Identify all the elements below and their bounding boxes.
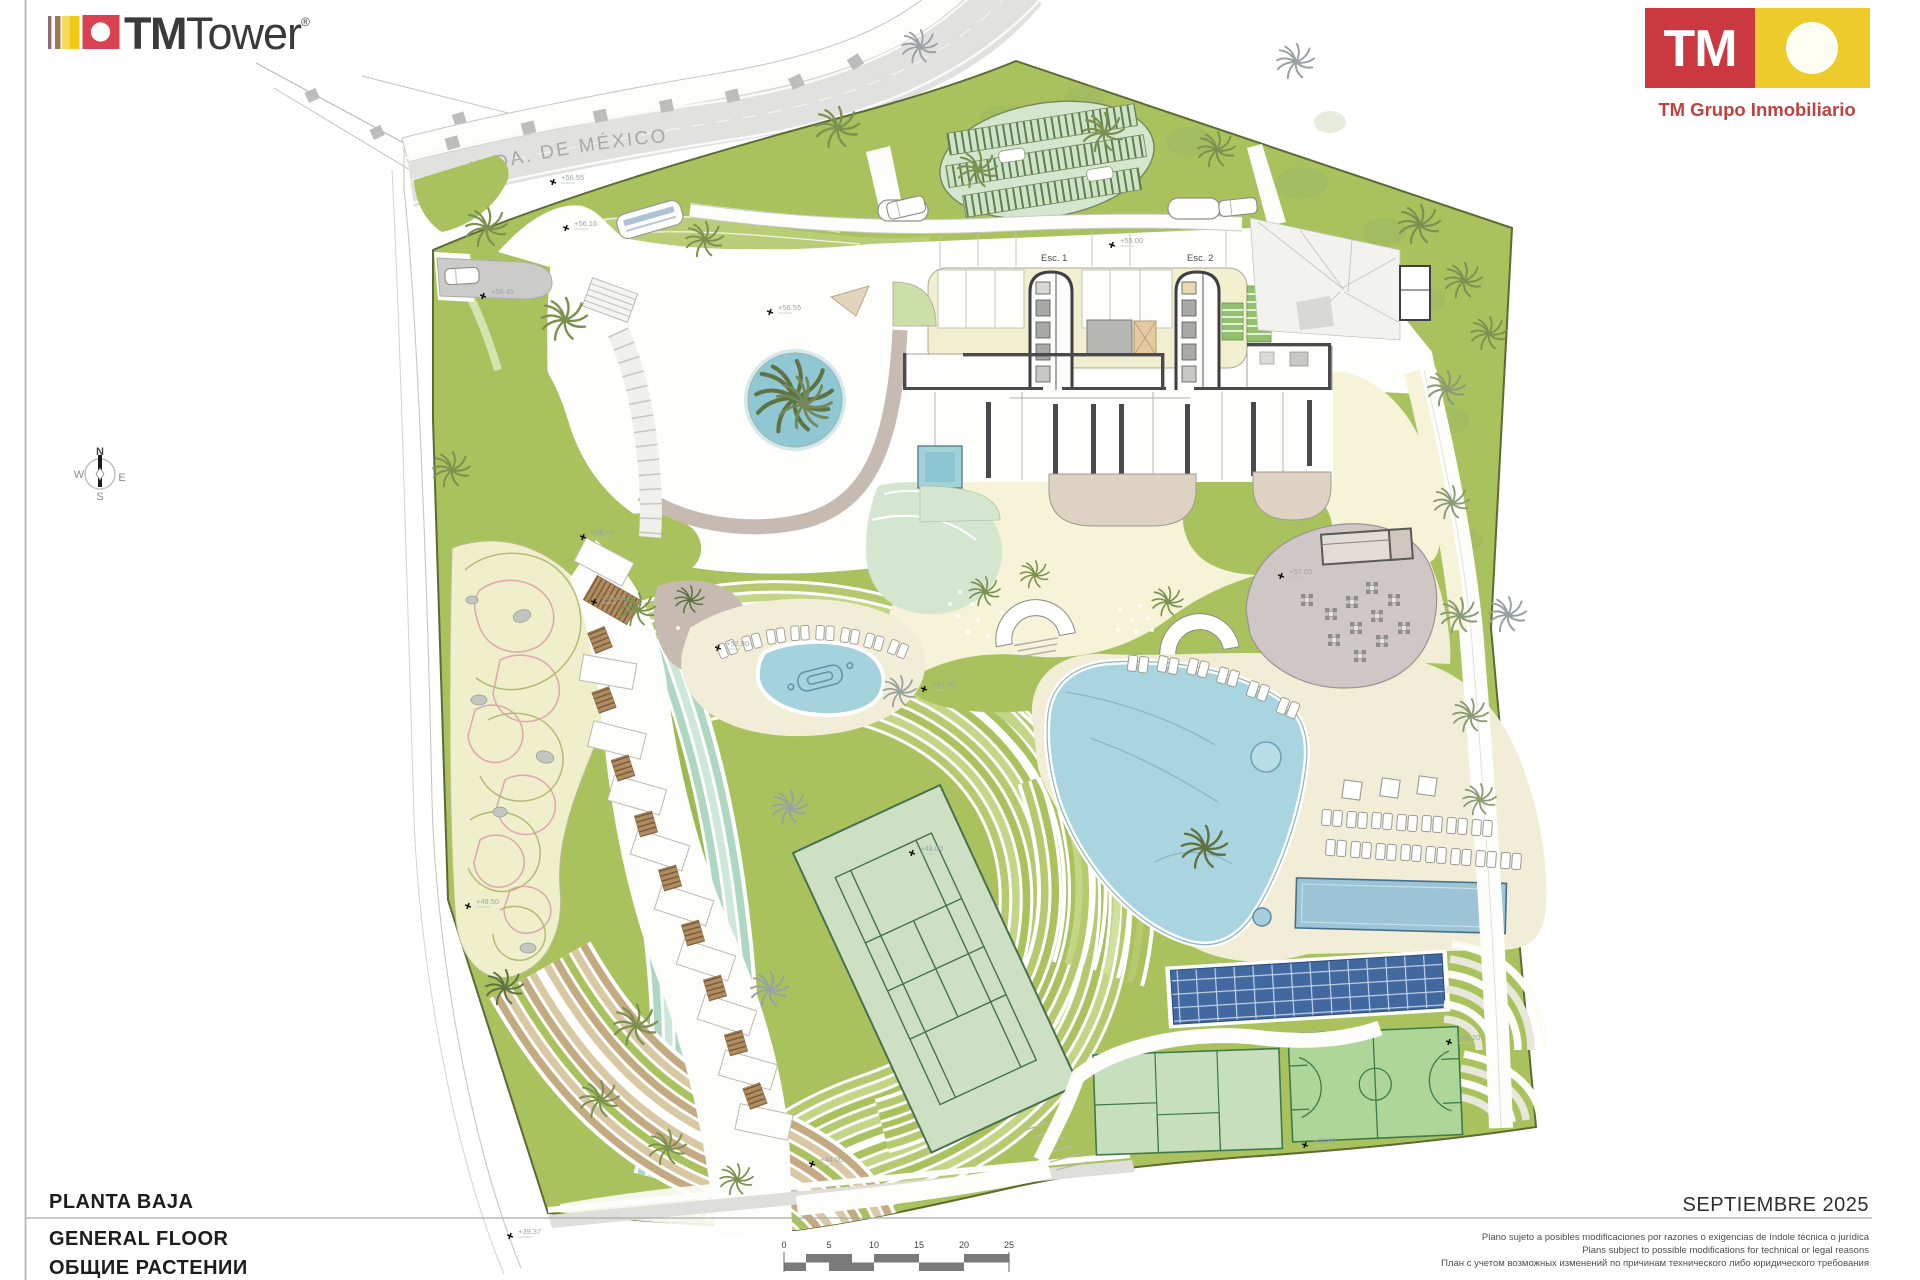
svg-text:+56.55: +56.55 bbox=[778, 303, 801, 312]
svg-text:N: N bbox=[96, 446, 104, 458]
svg-text:Esc. 2: Esc. 2 bbox=[1187, 253, 1213, 264]
svg-text:S: S bbox=[96, 491, 103, 503]
svg-text:Plans subject to possible modi: Plans subject to possible modifications … bbox=[1582, 1245, 1869, 1256]
svg-text:+53.00: +53.00 bbox=[932, 680, 955, 689]
svg-text:TM: TM bbox=[1663, 20, 1736, 78]
svg-text:+57.05: +57.05 bbox=[1289, 567, 1312, 576]
svg-text:+54.30: +54.30 bbox=[602, 593, 625, 602]
svg-text:+39.37: +39.37 bbox=[518, 1227, 541, 1236]
svg-text:+49.50: +49.50 bbox=[476, 897, 499, 906]
svg-text:План с учетом возможных измене: План с учетом возможных изменений по при… bbox=[1441, 1258, 1869, 1269]
svg-text:+56.16: +56.16 bbox=[574, 219, 597, 228]
svg-text:+49.00: +49.00 bbox=[920, 844, 943, 853]
svg-text:10: 10 bbox=[869, 1240, 879, 1250]
svg-text:Plano sujeto a posibles modifi: Plano sujeto a posibles modificaciones p… bbox=[1482, 1232, 1870, 1243]
svg-text:5: 5 bbox=[826, 1240, 831, 1250]
svg-text:+42.40: +42.40 bbox=[1313, 1136, 1336, 1145]
svg-text:GENERAL FLOOR: GENERAL FLOOR bbox=[49, 1228, 229, 1250]
svg-text:+55.00: +55.00 bbox=[1120, 236, 1143, 245]
svg-text:+52.80: +52.80 bbox=[726, 639, 749, 648]
svg-text:TM Grupo Inmobiliario: TM Grupo Inmobiliario bbox=[1658, 99, 1855, 120]
svg-text:Tower: Tower bbox=[186, 8, 302, 59]
svg-text:W: W bbox=[74, 469, 85, 481]
svg-text:Esc. 1: Esc. 1 bbox=[1041, 253, 1067, 264]
svg-text:20: 20 bbox=[959, 1240, 969, 1250]
svg-text:25: 25 bbox=[1004, 1240, 1014, 1250]
svg-text:+56.55: +56.55 bbox=[561, 173, 584, 182]
svg-text:+56.45: +56.45 bbox=[491, 287, 514, 296]
svg-text:15: 15 bbox=[914, 1240, 924, 1250]
svg-text:®: ® bbox=[301, 15, 310, 29]
svg-text:TM: TM bbox=[124, 8, 186, 59]
svg-text:0: 0 bbox=[781, 1240, 786, 1250]
svg-text:ОБЩИЕ РАСТЕНИИ: ОБЩИЕ РАСТЕНИИ bbox=[49, 1257, 248, 1279]
svg-text:E: E bbox=[118, 472, 125, 484]
svg-text:+44.00: +44.00 bbox=[820, 1155, 843, 1164]
svg-text:+43.20: +43.20 bbox=[1457, 1033, 1480, 1042]
svg-text:PLANTA BAJA: PLANTA BAJA bbox=[49, 1191, 193, 1213]
svg-text:+56.16: +56.16 bbox=[591, 528, 614, 537]
svg-text:SEPTIEMBRE 2025: SEPTIEMBRE 2025 bbox=[1683, 1194, 1869, 1216]
